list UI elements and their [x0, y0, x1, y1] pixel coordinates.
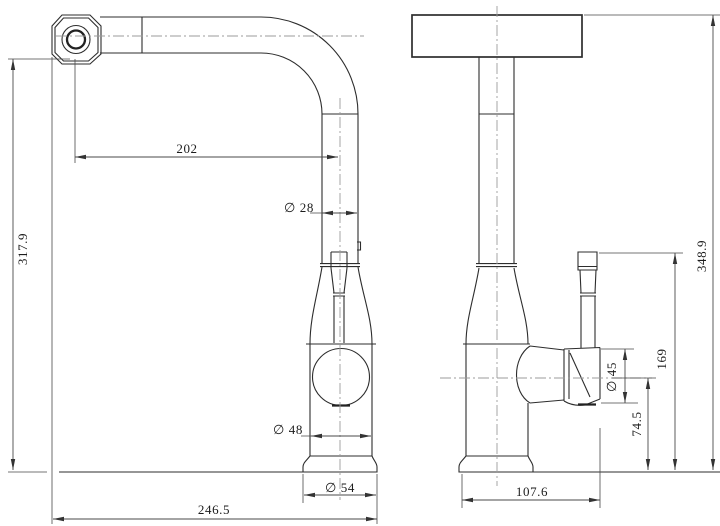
dim-label-202: 202 [176, 141, 197, 156]
dim-label-107-6: 107.6 [516, 484, 548, 499]
spout-tube [100, 17, 261, 53]
dim-label-74-5: 74.5 [629, 411, 644, 436]
handle-mount-circle [313, 349, 370, 406]
dim-label-d48: ∅ 48 [273, 422, 303, 437]
riser-pipe-front [479, 57, 514, 264]
handle-mount-cone [517, 346, 565, 403]
pullout-wand [331, 252, 347, 343]
drawing-canvas: 202 ∅ 28 317.9 ∅ 48 ∅ 54 246.5 348.9 169… [0, 0, 720, 526]
reference-lines [8, 15, 720, 524]
riser-pipe [322, 114, 361, 264]
dimensions: 202 ∅ 28 317.9 ∅ 48 ∅ 54 246.5 348.9 169… [13, 15, 713, 519]
dim-label-d28: ∅ 28 [284, 200, 314, 215]
dim-label-169: 169 [654, 348, 669, 369]
dim-label-348-9: 348.9 [694, 240, 709, 272]
dim-label-d45: ∅ 45 [604, 362, 619, 392]
dim-label-246-5: 246.5 [198, 502, 230, 517]
dim-label-d54: ∅ 54 [325, 480, 355, 495]
technical-drawing-faucet: 202 ∅ 28 317.9 ∅ 48 ∅ 54 246.5 348.9 169… [0, 0, 720, 526]
side-view [52, 15, 377, 472]
body-outline-front [459, 268, 533, 472]
spray-head-nozzle-circle [67, 31, 85, 49]
front-view [412, 15, 600, 472]
dim-label-317-9: 317.9 [15, 233, 30, 265]
extension-lines [8, 15, 720, 524]
handle-lever [578, 252, 597, 348]
handle-hub [564, 348, 600, 406]
centerlines [56, 6, 652, 500]
spout-bend [261, 17, 358, 114]
neck-collar-front [476, 264, 517, 267]
